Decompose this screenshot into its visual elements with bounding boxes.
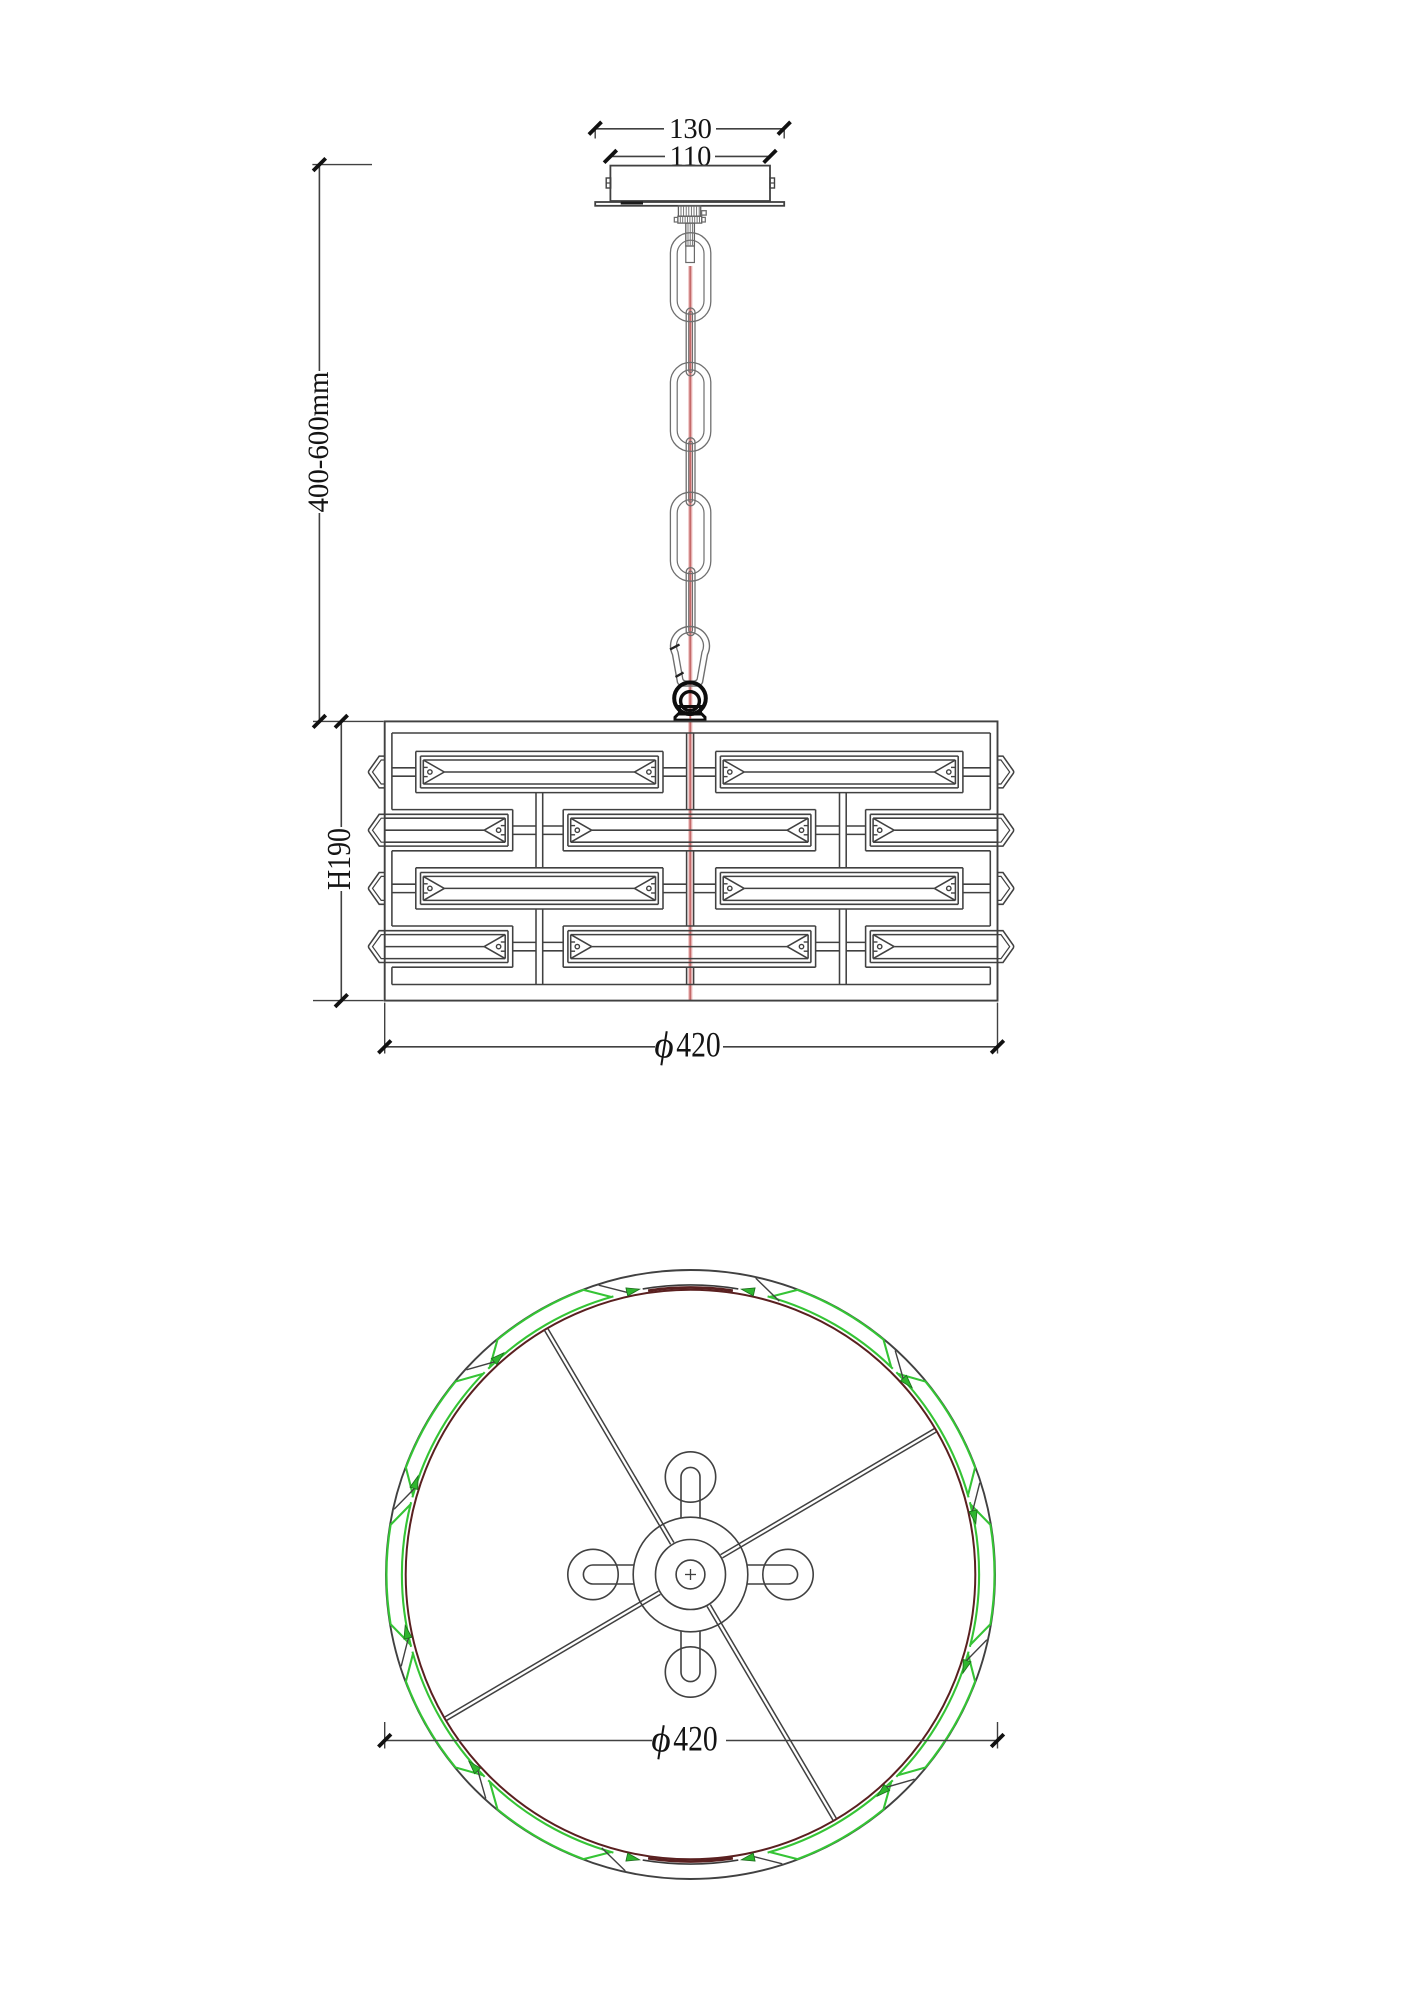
svg-text:420: 420	[673, 1719, 718, 1759]
svg-text:130: 130	[669, 114, 712, 145]
svg-text:H190: H190	[321, 828, 358, 890]
svg-text:110: 110	[670, 141, 712, 172]
svg-text:420: 420	[676, 1025, 721, 1065]
svg-text:400-600mm: 400-600mm	[302, 372, 335, 513]
